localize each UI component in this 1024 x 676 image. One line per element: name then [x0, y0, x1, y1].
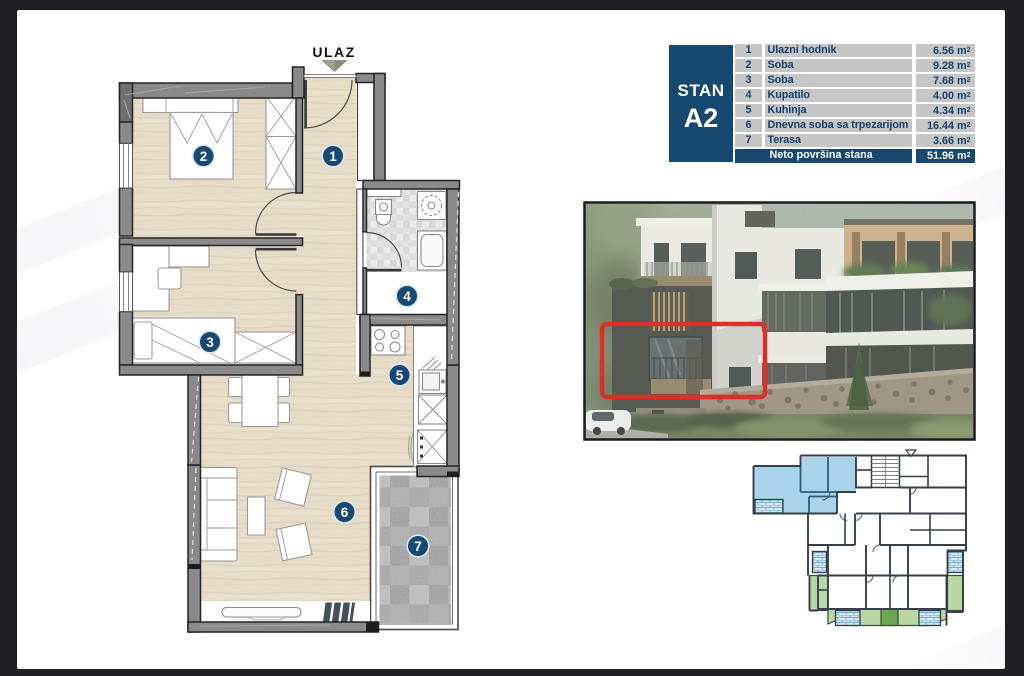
svg-text:3: 3: [206, 335, 214, 350]
svg-text:ULAZ: ULAZ: [312, 44, 355, 60]
svg-text:7: 7: [414, 539, 422, 554]
svg-text:6: 6: [341, 505, 349, 520]
svg-text:2: 2: [200, 149, 208, 164]
svg-text:4: 4: [403, 289, 411, 304]
svg-text:1: 1: [329, 149, 337, 164]
svg-text:5: 5: [396, 368, 404, 383]
